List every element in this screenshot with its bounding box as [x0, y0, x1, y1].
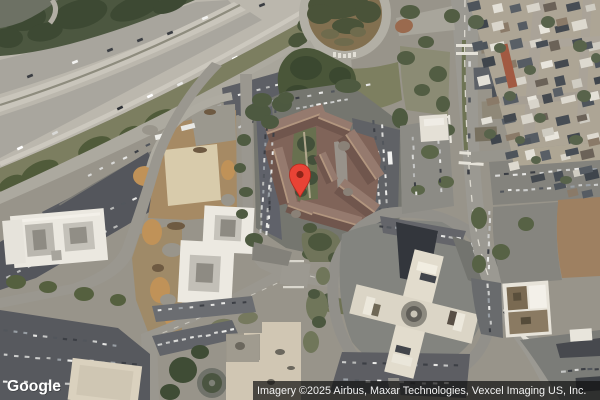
svg-text:Imagery ©2025 Airbus, Maxar Te: Imagery ©2025 Airbus, Maxar Technologies…: [257, 385, 586, 397]
svg-text:Google: Google: [7, 378, 61, 395]
